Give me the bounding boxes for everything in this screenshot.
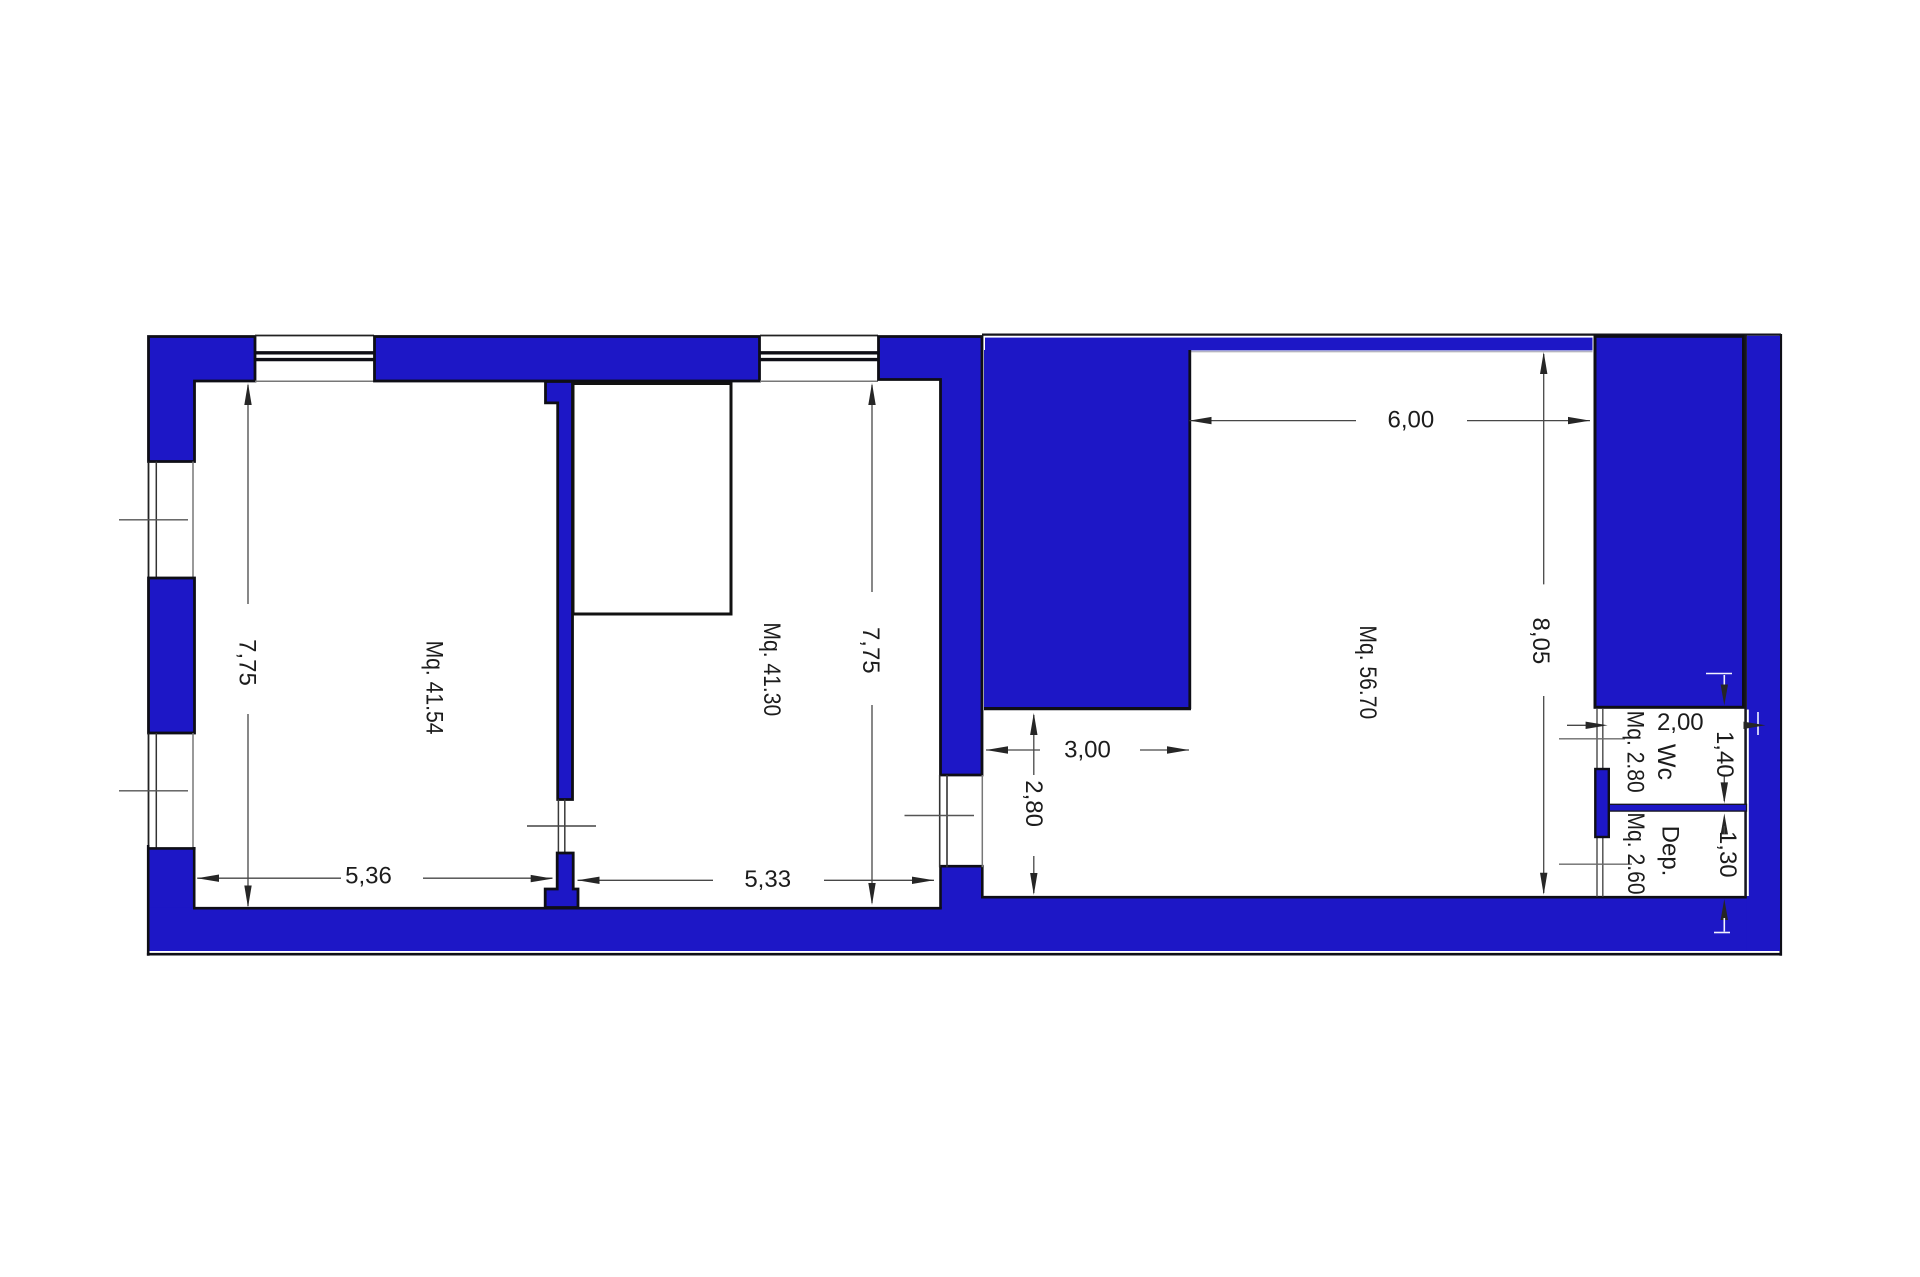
svg-text:7,75: 7,75	[233, 639, 260, 686]
svg-text:Mq. 2.80: Mq. 2.80	[1622, 711, 1649, 793]
svg-text:3,00: 3,00	[1064, 737, 1111, 764]
svg-text:2,80: 2,80	[1020, 780, 1047, 827]
svg-text:1,30: 1,30	[1714, 831, 1741, 878]
svg-text:8,05: 8,05	[1527, 618, 1554, 665]
svg-text:5,36: 5,36	[345, 862, 392, 889]
svg-text:1,40: 1,40	[1711, 731, 1738, 778]
svg-text:7,75: 7,75	[857, 627, 884, 674]
svg-text:Mq. 41.30: Mq. 41.30	[759, 622, 786, 716]
svg-text:2,00: 2,00	[1657, 709, 1704, 736]
svg-text:5,33: 5,33	[744, 866, 791, 893]
svg-text:Mq. 56.70: Mq. 56.70	[1355, 625, 1382, 719]
svg-text:Dep.: Dep.	[1657, 826, 1684, 877]
svg-text:6,00: 6,00	[1388, 406, 1435, 433]
svg-text:Wc: Wc	[1652, 744, 1680, 780]
svg-text:Mq. 41.54: Mq. 41.54	[421, 641, 448, 735]
svg-text:Mq. 2.60: Mq. 2.60	[1623, 812, 1650, 894]
